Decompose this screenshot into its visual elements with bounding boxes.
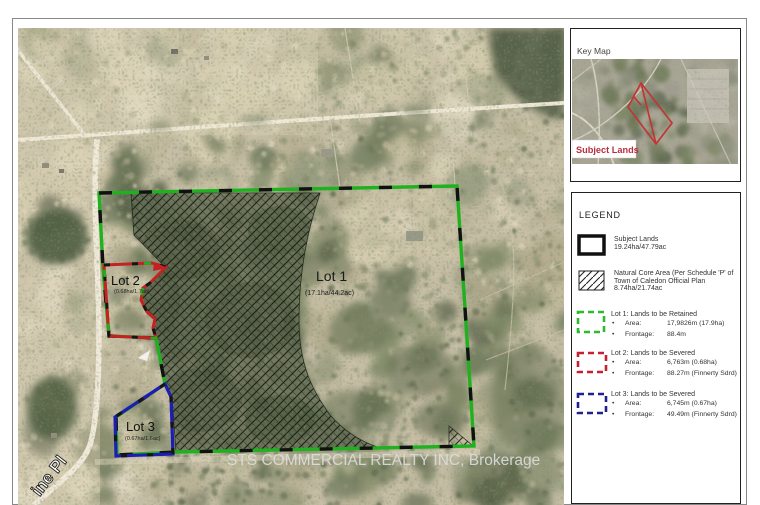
svg-text:(0.68ha/1.7ac): (0.68ha/1.7ac)	[114, 289, 150, 295]
svg-text:(17.1ha/44.2ac): (17.1ha/44.2ac)	[305, 290, 354, 297]
svg-text:Subject Lands: Subject Lands	[576, 145, 639, 155]
svg-text:Lot 1: Lot 1	[316, 268, 347, 284]
svg-text:Lot 3: Lot 3	[126, 419, 155, 434]
svg-text:Lot 2: Lot 2	[111, 273, 140, 288]
svg-text:STS COMMERCIAL REALTY INC, Bro: STS COMMERCIAL REALTY INC, Brokerage	[227, 452, 540, 469]
svg-text:(0.67ha/1.6ac): (0.67ha/1.6ac)	[125, 436, 161, 442]
